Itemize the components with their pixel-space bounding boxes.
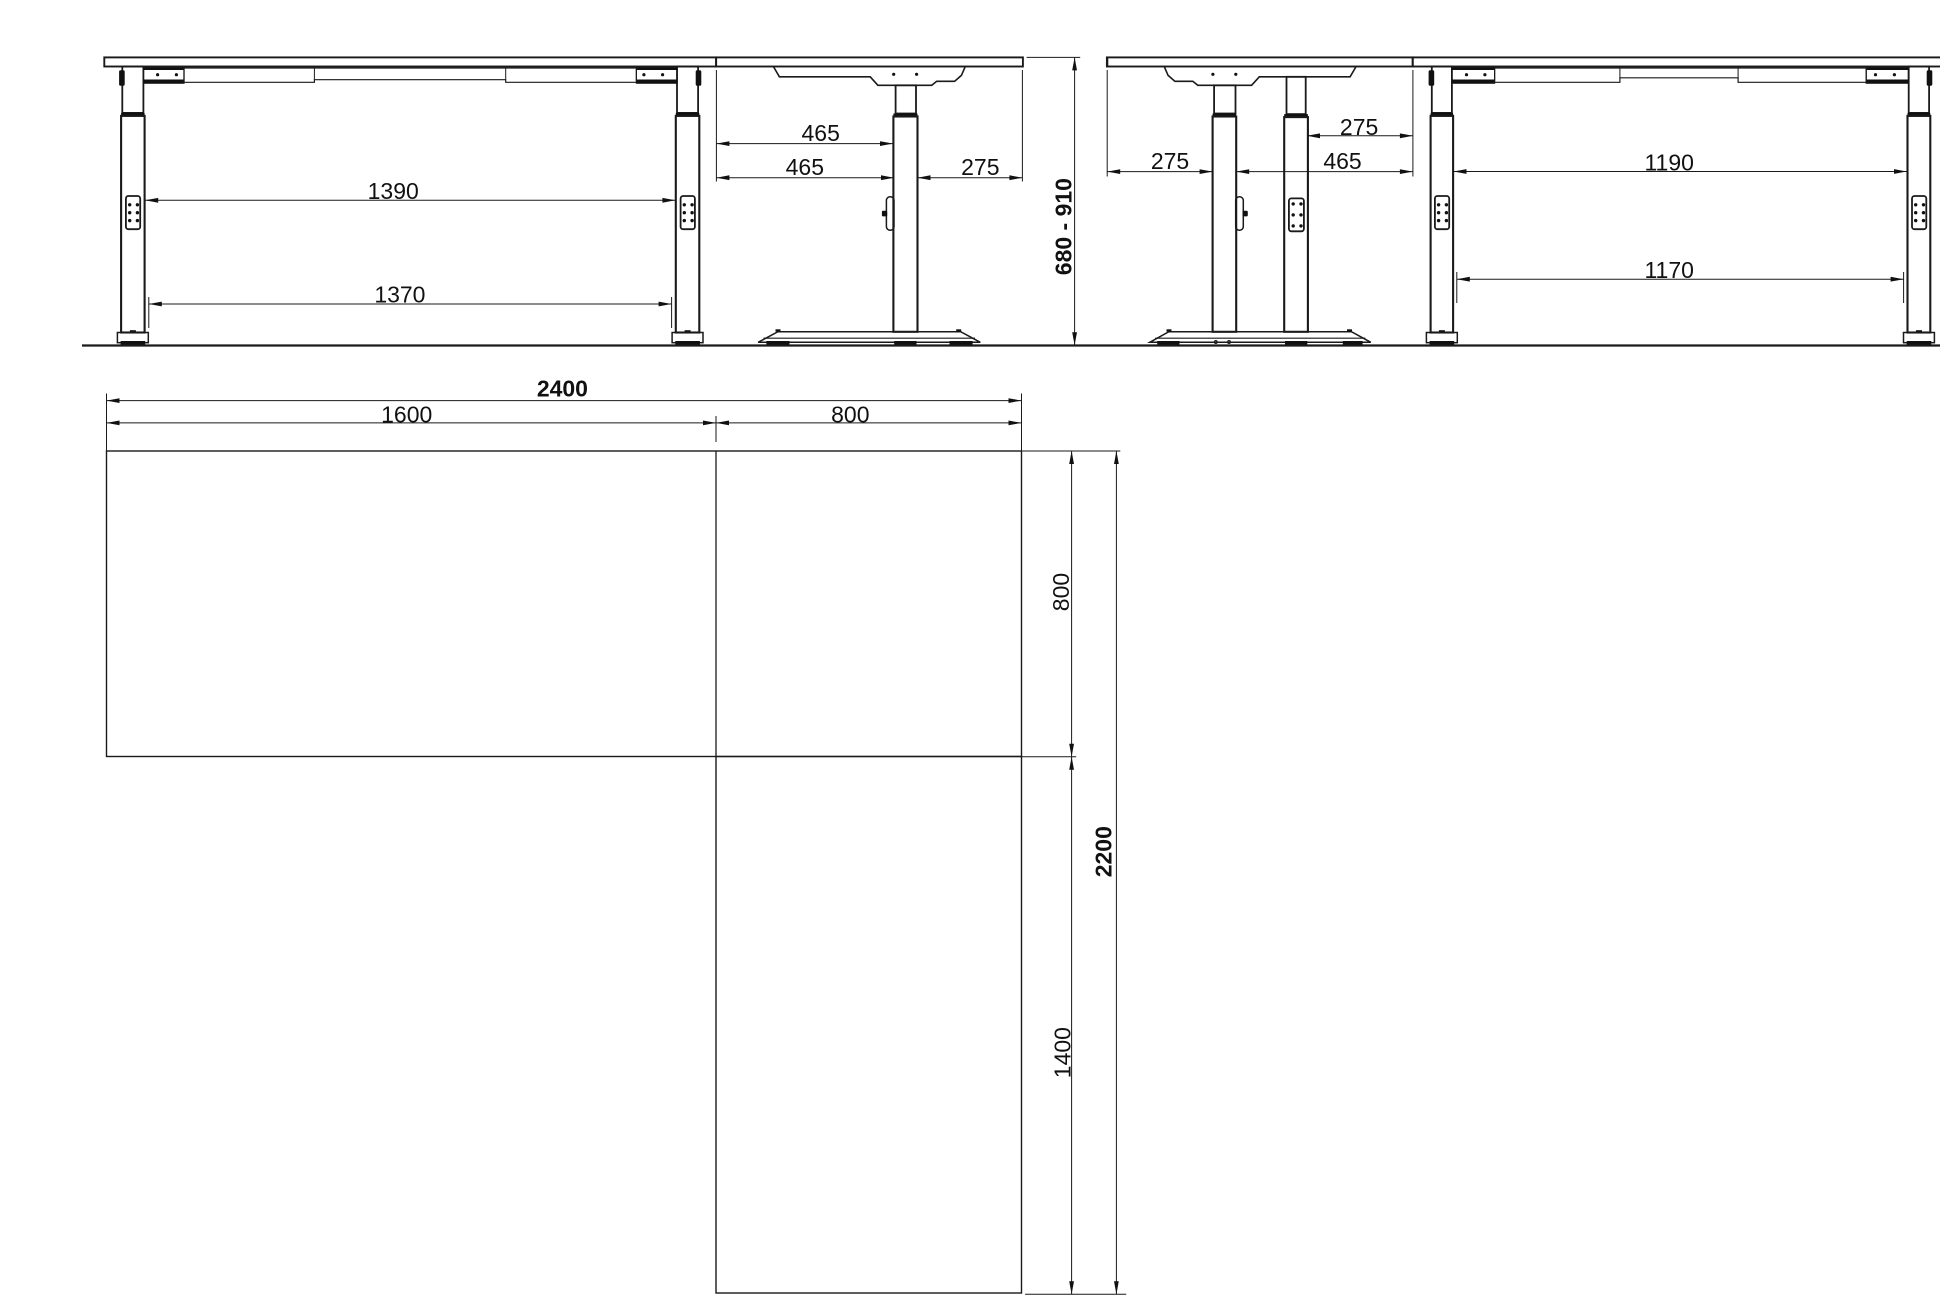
svg-text:1390: 1390 bbox=[368, 178, 419, 204]
svg-text:1190: 1190 bbox=[1644, 149, 1693, 175]
svg-text:1400: 1400 bbox=[1050, 1027, 1076, 1078]
svg-text:275: 275 bbox=[1151, 148, 1189, 174]
svg-text:2200: 2200 bbox=[1090, 826, 1116, 877]
svg-text:1170: 1170 bbox=[1644, 257, 1693, 283]
svg-text:680 - 910: 680 - 910 bbox=[1051, 178, 1077, 275]
svg-text:800: 800 bbox=[831, 401, 869, 427]
svg-text:275: 275 bbox=[1340, 114, 1378, 140]
svg-text:1370: 1370 bbox=[374, 282, 425, 308]
svg-text:465: 465 bbox=[802, 120, 840, 146]
svg-text:800: 800 bbox=[1048, 573, 1074, 611]
svg-text:465: 465 bbox=[1323, 148, 1361, 174]
svg-text:275: 275 bbox=[961, 154, 999, 180]
svg-text:2400: 2400 bbox=[537, 376, 588, 402]
svg-text:465: 465 bbox=[786, 154, 824, 180]
svg-text:1600: 1600 bbox=[381, 401, 432, 427]
